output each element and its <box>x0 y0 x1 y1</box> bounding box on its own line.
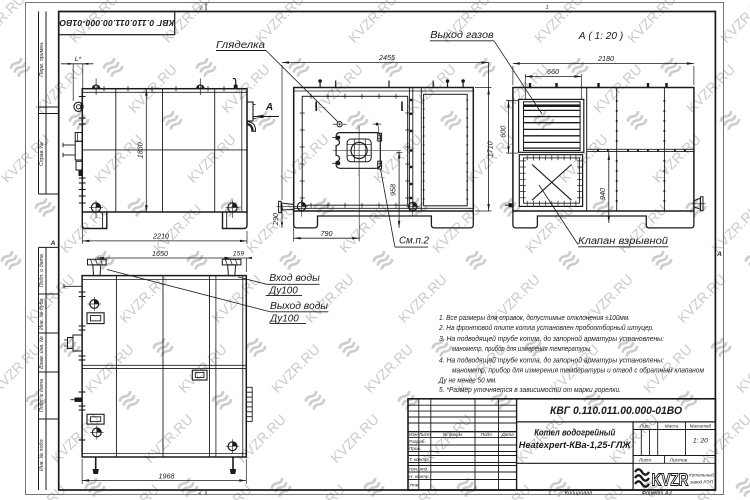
svg-text:Подп.: Подп. <box>481 432 493 437</box>
svg-text:600: 600 <box>498 126 507 138</box>
svg-text:660: 660 <box>547 67 559 76</box>
svg-text:А: А <box>265 102 273 113</box>
svg-text:Пров.: Пров. <box>409 446 421 451</box>
svg-text:Лит.: Лит. <box>639 423 651 428</box>
svg-text:№ докум.: № докум. <box>443 432 463 437</box>
svg-text:Подп. и дата: Подп. и дата <box>39 379 45 412</box>
svg-text:1650: 1650 <box>152 249 168 258</box>
svg-text:А: А <box>716 251 722 258</box>
svg-text:1: 1 <box>548 490 551 496</box>
svg-text:Выход воды: Выход воды <box>270 301 329 312</box>
svg-text:2: 2 <box>197 490 201 496</box>
svg-text:Ду не менее 50 мм.: Ду не менее 50 мм. <box>438 375 497 384</box>
svg-text:1968: 1968 <box>159 471 175 480</box>
svg-text:Гляделка: Гляделка <box>216 40 266 51</box>
svg-text:Листов: Листов <box>669 457 688 463</box>
svg-text:1: 20: 1: 20 <box>693 438 708 445</box>
svg-text:5. *Размер уточняется в зависи: 5. *Размер уточняется в зависимости от м… <box>439 385 621 394</box>
svg-text:Взам. инв. №: Взам. инв. № <box>39 336 45 369</box>
svg-text:А: А <box>50 240 56 247</box>
svg-text:Вход воды: Вход воды <box>269 273 320 284</box>
svg-text:Инв. № дубл.: Инв. № дубл. <box>39 297 45 330</box>
svg-text:Изм: Изм <box>409 432 418 437</box>
svg-text:790: 790 <box>321 229 333 238</box>
svg-text:1: 1 <box>545 5 548 11</box>
svg-text:манометр, прибор для измерения: манометр, прибор для измерения температу… <box>452 344 592 353</box>
svg-text:КВГ 0.110.011.00.000-01ВО: КВГ 0.110.011.00.000-01ВО <box>550 405 682 417</box>
svg-text:манометр, прибор для измерения: манометр, прибор для измерения температу… <box>452 365 704 374</box>
svg-text:159: 159 <box>233 251 245 258</box>
svg-text:Справ. №: Справ. № <box>39 142 45 166</box>
svg-text:940: 940 <box>598 188 607 200</box>
svg-text:Котел водогрейный: Котел водогрейный <box>534 427 615 437</box>
svg-text:958: 958 <box>389 184 398 196</box>
svg-text:1830: 1830 <box>136 142 145 158</box>
svg-text:3. На подводящей трубе котла,: 3. На подводящей трубе котла, до запорно… <box>439 334 664 343</box>
svg-text:2180: 2180 <box>597 54 614 63</box>
svg-text:2455: 2455 <box>378 53 396 62</box>
svg-text:Масштаб: Масштаб <box>690 423 712 428</box>
svg-text:2. На фронтовой плите котла ус: 2. На фронтовой плите котла установлен п… <box>438 323 654 332</box>
svg-text:Лист: Лист <box>638 457 651 463</box>
svg-text:Heatexpert-КВа-1,25-ГЛЖ: Heatexpert-КВа-1,25-ГЛЖ <box>519 440 632 450</box>
svg-text:Т. контр.: Т. контр. <box>409 457 429 462</box>
svg-text:Клапан взрывной: Клапан взрывной <box>578 236 669 247</box>
svg-text:290: 290 <box>271 213 280 226</box>
svg-text:Котельный: Котельный <box>689 472 714 478</box>
svg-text:Перв. примен.: Перв. примен. <box>39 41 45 76</box>
svg-text:Дата: Дата <box>501 432 515 437</box>
svg-text:1: 1 <box>703 457 706 463</box>
svg-text:Подп. и дата: Подп. и дата <box>39 254 45 287</box>
svg-text:Н. контр.: Н. контр. <box>409 474 430 479</box>
svg-text:1. Все размеры для справок, до: 1. Все размеры для справок, допустимые о… <box>439 313 630 322</box>
svg-text:Разраб.: Разраб. <box>409 439 426 444</box>
svg-text:Ду100: Ду100 <box>268 285 298 296</box>
svg-text:Лист: Лист <box>418 432 431 437</box>
svg-text:2: 2 <box>198 6 202 12</box>
svg-text:КВГ 0.110.011.00.000-01ВО: КВГ 0.110.011.00.000-01ВО <box>59 18 174 28</box>
svg-text:4. На подводящей трубе котла,: 4. На подводящей трубе котла, до запорно… <box>439 355 664 364</box>
svg-text:Утв.: Утв. <box>409 483 419 488</box>
svg-text:Масса: Масса <box>665 423 679 428</box>
svg-text:KVZR: KVZR <box>652 470 689 490</box>
svg-text:Инв. № подл.: Инв. № подл. <box>39 438 45 471</box>
svg-text:1710: 1710 <box>486 141 495 157</box>
svg-text:Формат А3: Формат А3 <box>642 491 673 497</box>
svg-text:А ( 1: 20 ): А ( 1: 20 ) <box>578 31 624 42</box>
svg-text:L*: L* <box>75 56 82 63</box>
svg-text:2210: 2210 <box>152 232 169 241</box>
svg-text:Нач.отд.: Нач.отд. <box>409 467 428 472</box>
svg-text:Копировал: Копировал <box>565 490 592 496</box>
svg-text:завод РЭП: завод РЭП <box>689 480 714 485</box>
svg-text:Ду100: Ду100 <box>269 313 299 324</box>
svg-text:Выход газов: Выход газов <box>430 30 494 41</box>
svg-text:См.п.2: См.п.2 <box>399 236 430 247</box>
